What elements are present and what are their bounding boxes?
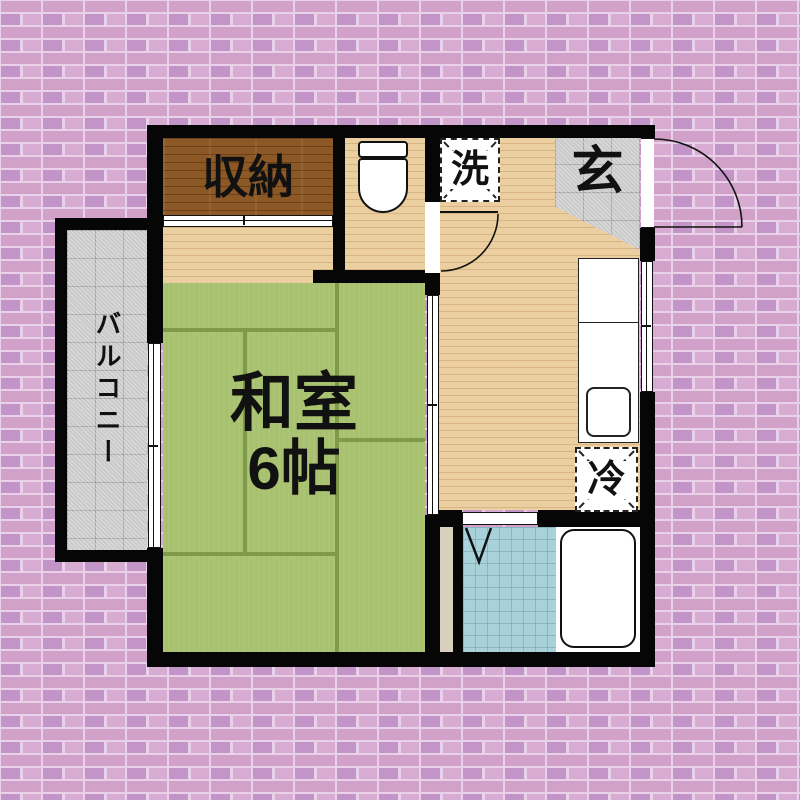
- refrigerator-space: 冷: [575, 447, 638, 512]
- bathtub: [560, 529, 636, 648]
- wall-storage-toilet: [333, 125, 345, 283]
- wall-toilet-south: [313, 270, 440, 283]
- wall-bathroom-north-right: [538, 510, 655, 527]
- wall-left-lower: [147, 548, 163, 667]
- wall-tatami-east-upper: [425, 273, 440, 295]
- refrigerator-label: 冷: [585, 461, 627, 499]
- storage-label: 収納: [202, 154, 294, 200]
- wall-bottom: [147, 652, 655, 667]
- kitchen-window: [641, 261, 653, 392]
- bathroom-door: [462, 512, 538, 525]
- entry-door: [641, 138, 654, 228]
- washer-label: 洗: [449, 151, 491, 189]
- balcony-area: バルコニー: [67, 230, 147, 550]
- tatami-kitchen-sliding-door: [427, 295, 439, 515]
- wall-right-mid: [640, 228, 655, 261]
- balcony-label: バルコニー: [94, 310, 120, 470]
- wall-top: [147, 125, 655, 138]
- toilet-doorway: [425, 202, 440, 273]
- toilet-tank: [358, 141, 408, 158]
- wall-right-lower: [640, 392, 655, 667]
- wall-pipe-space-east: [453, 515, 463, 652]
- entrance-label: 玄: [571, 146, 623, 198]
- floorplan-canvas: バルコニー 和室 6帖 玄: [0, 0, 800, 800]
- wall-bathroom-north-left: [437, 510, 462, 527]
- toilet-fixture: [358, 158, 408, 213]
- kitchen-sink: [586, 387, 631, 437]
- tatami-line: [163, 552, 337, 556]
- pipe-space: [440, 527, 453, 652]
- storage-label-wrap: 収納: [163, 138, 333, 215]
- wall-toilet-east-upper: [425, 125, 440, 202]
- storage-sliding-door: [163, 215, 333, 227]
- bathroom-area: [463, 527, 556, 652]
- washer-space: 洗: [440, 138, 500, 202]
- wall-tatami-east-lower: [425, 515, 440, 652]
- japanese-room-area: 和室 6帖: [163, 283, 425, 652]
- wall-left-upper: [147, 125, 163, 343]
- tatami-line: [163, 328, 339, 332]
- japanese-room-size-label: 6帖: [163, 439, 425, 499]
- balcony-window: [148, 343, 161, 548]
- japanese-room-label: 和室: [163, 371, 425, 435]
- hallway-floor: [163, 227, 333, 283]
- wall-right-top: [640, 125, 655, 138]
- kitchen-counter: [578, 258, 639, 443]
